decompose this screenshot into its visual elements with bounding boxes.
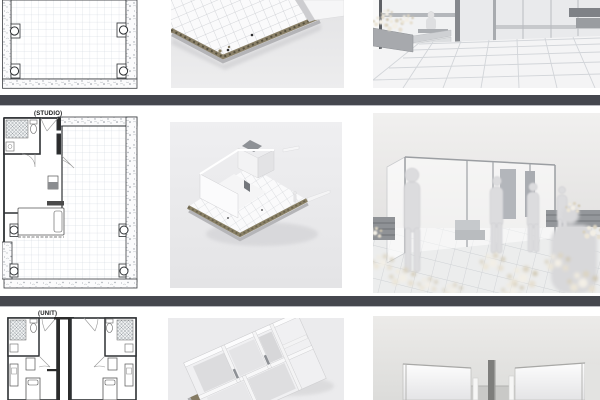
figure-3 xyxy=(527,183,539,252)
grid-floor xyxy=(11,0,126,79)
glass-volume-right xyxy=(515,363,600,400)
presentation-board: (STUDIO) xyxy=(0,0,600,400)
bed xyxy=(18,208,64,237)
glass-volume-left xyxy=(403,364,471,400)
floor-plan-studio xyxy=(2,116,138,290)
unit-right xyxy=(71,318,136,400)
iso-model-photo-room xyxy=(171,0,344,88)
separator-bar xyxy=(0,95,600,106)
iso-model-photo-unit xyxy=(168,318,344,400)
separator-bar xyxy=(0,296,600,307)
bathroom xyxy=(4,118,40,154)
view-photo-studio xyxy=(373,113,600,293)
unit-left xyxy=(8,318,57,400)
mini-figure xyxy=(293,191,296,202)
center-post xyxy=(488,360,494,400)
view-photo-room xyxy=(373,0,600,88)
view-photo-unit xyxy=(373,316,600,400)
iso-model-photo-studio xyxy=(170,122,342,288)
floor-plan-unit xyxy=(6,317,138,400)
floor-plan-room xyxy=(2,0,138,89)
